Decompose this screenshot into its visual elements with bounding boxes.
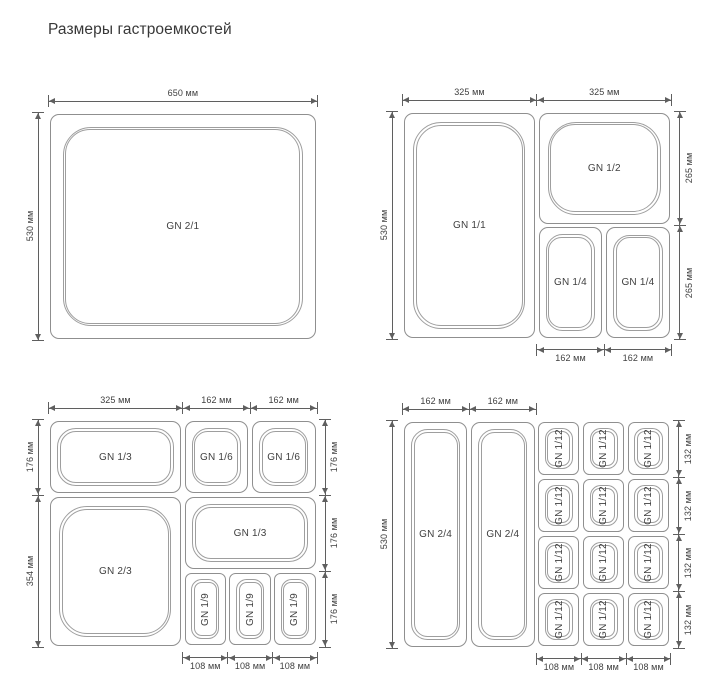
- dimension-extension-tick: [386, 339, 398, 340]
- dimension-arrow-down: [322, 564, 328, 570]
- dimension-arrow-up: [322, 572, 328, 578]
- container-label: GN 2/4: [472, 423, 534, 646]
- dimension-label: 530 мм: [25, 211, 35, 242]
- dimension-arrow-up: [677, 112, 683, 118]
- dimension-arrow-up: [676, 535, 682, 541]
- container-label: GN 1/12: [584, 480, 623, 531]
- container-gn-1-4: GN 1/4: [606, 227, 670, 338]
- container-label: GN 1/12: [629, 537, 668, 588]
- dimension-label: 132 мм: [683, 490, 693, 521]
- dimension-arrow-right: [176, 405, 182, 411]
- dimension-line: [38, 495, 39, 648]
- container-gn-1-12: GN 1/12: [583, 536, 624, 589]
- dimension-line: [48, 408, 183, 409]
- dimension-arrow-right: [597, 347, 603, 353]
- dimension-arrow-down: [676, 641, 682, 647]
- dimension-arrow-up: [677, 226, 683, 232]
- dimension-label: 265 мм: [684, 153, 694, 184]
- container-label-text: GN 1/12: [553, 429, 564, 468]
- container-gn-1-3: GN 1/3: [185, 497, 316, 569]
- dimension-arrow-down: [676, 584, 682, 590]
- container-label-text: GN 1/2: [588, 163, 621, 174]
- container-gn-1-12: GN 1/12: [628, 536, 669, 589]
- dimension-arrow-left: [605, 347, 611, 353]
- container-label-text: GN 1/9: [200, 593, 211, 626]
- dimension-arrow-up: [676, 592, 682, 598]
- dimension-arrow-down: [677, 333, 683, 339]
- container-label: GN 2/4: [405, 423, 467, 646]
- container-label-text: GN 1/6: [200, 452, 233, 463]
- dimension-line: [678, 534, 679, 591]
- container-gn-1-9: GN 1/9: [185, 573, 226, 645]
- dimension-label: 162 мм: [420, 396, 451, 406]
- dimension-label: 162 мм: [623, 353, 654, 363]
- dimension-line: [679, 225, 680, 339]
- container-gn-1-12: GN 1/12: [583, 593, 624, 646]
- dimension-extension-tick: [386, 648, 398, 649]
- container-gn-1-12: GN 1/12: [538, 479, 579, 532]
- dimension-label: 108 мм: [190, 661, 221, 671]
- dimension-extension-tick: [671, 344, 672, 356]
- dimension-line: [38, 419, 39, 495]
- dimension-arrow-left: [184, 655, 190, 661]
- dimension-arrow-up: [322, 496, 328, 502]
- container-label-text: GN 1/12: [643, 543, 654, 582]
- container-gn-1-12: GN 1/12: [628, 593, 669, 646]
- dimension-label: 176 мм: [329, 594, 339, 625]
- dimension-line: [38, 112, 39, 341]
- container-gn-1-12: GN 1/12: [583, 479, 624, 532]
- container-label-text: GN 2/1: [166, 221, 199, 232]
- container-label-text: GN 2/4: [419, 529, 452, 540]
- dimension-label: 176 мм: [329, 518, 339, 549]
- dimension-label: 325 мм: [100, 395, 131, 405]
- container-gn-1-2: GN 1/2: [539, 113, 670, 224]
- container-label: GN 1/12: [584, 594, 623, 645]
- dimension-arrow-left: [627, 656, 633, 662]
- container-label: GN 1/12: [629, 594, 668, 645]
- dimension-label: 108 мм: [235, 661, 266, 671]
- dimension-line: [537, 100, 672, 101]
- container-label-text: GN 1/12: [643, 600, 654, 639]
- container-label-text: GN 1/12: [553, 486, 564, 525]
- container-label-text: GN 1/3: [234, 528, 267, 539]
- container-gn-1-9: GN 1/9: [274, 573, 315, 645]
- dimension-extension-tick: [671, 94, 672, 106]
- dimension-line: [250, 408, 317, 409]
- container-gn-1-12: GN 1/12: [538, 593, 579, 646]
- dimension-arrow-up: [676, 478, 682, 484]
- dimension-arrow-right: [619, 656, 625, 662]
- container-label: GN 1/4: [607, 228, 669, 337]
- dimension-arrow-up: [35, 420, 41, 426]
- dimension-arrow-right: [266, 655, 272, 661]
- container-gn-1-3: GN 1/3: [50, 421, 181, 493]
- dimension-label: 108 мм: [544, 662, 575, 672]
- dimension-arrow-down: [35, 641, 41, 647]
- container-label-text: GN 1/12: [553, 600, 564, 639]
- dimension-line: [679, 111, 680, 225]
- dimension-line: [402, 409, 469, 410]
- dimension-label: 162 мм: [555, 353, 586, 363]
- container-label: GN 1/9: [275, 574, 314, 644]
- dimension-extension-tick: [32, 340, 44, 341]
- container-label-text: GN 1/12: [598, 543, 609, 582]
- dimension-arrow-left: [274, 655, 280, 661]
- dimension-arrow-down: [389, 642, 395, 648]
- dimension-arrow-right: [221, 655, 227, 661]
- container-label-text: GN 1/9: [245, 593, 256, 626]
- dimension-label: 530 мм: [379, 210, 389, 241]
- panel-gn-2-4-combo: GN 2/4GN 2/4GN 1/12GN 1/12GN 1/12GN 1/12…: [402, 420, 671, 649]
- dimension-line: [678, 591, 679, 648]
- dimension-arrow-down: [322, 640, 328, 646]
- dimension-label: 162 мм: [488, 396, 519, 406]
- container-gn-1-9: GN 1/9: [229, 573, 270, 645]
- container-label: GN 1/12: [584, 423, 623, 474]
- dimension-line: [325, 495, 326, 571]
- container-label: GN 1/12: [539, 594, 578, 645]
- dimension-label: 325 мм: [454, 87, 485, 97]
- dimension-arrow-left: [582, 656, 588, 662]
- container-label: GN 1/2: [540, 114, 669, 223]
- dimension-arrow-up: [389, 421, 395, 427]
- container-gn-2-4: GN 2/4: [471, 422, 535, 647]
- container-label-text: GN 1/12: [598, 600, 609, 639]
- dimension-extension-tick: [317, 402, 318, 414]
- dimension-label: 265 мм: [684, 267, 694, 298]
- dimension-arrow-left: [229, 655, 235, 661]
- dimension-arrow-left: [538, 347, 544, 353]
- dimension-arrow-left: [184, 405, 190, 411]
- dimension-arrow-right: [529, 406, 535, 412]
- container-label: GN 2/1: [51, 115, 315, 338]
- dimension-label: 650 мм: [168, 88, 199, 98]
- dimension-arrow-up: [676, 421, 682, 427]
- dimension-label: 176 мм: [329, 442, 339, 473]
- dimension-arrow-down: [676, 470, 682, 476]
- dimension-label: 530 мм: [379, 519, 389, 550]
- container-label: GN 1/6: [186, 422, 248, 492]
- container-label-text: GN 1/12: [643, 486, 654, 525]
- container-gn-1-12: GN 1/12: [628, 422, 669, 475]
- container-gn-2-3: GN 2/3: [50, 497, 181, 646]
- dimension-label: 132 мм: [683, 604, 693, 635]
- dimension-line: [325, 419, 326, 495]
- dimension-arrow-left: [49, 98, 55, 104]
- dimension-line: [402, 100, 537, 101]
- dimension-label: 132 мм: [683, 547, 693, 578]
- container-label-text: GN 1/6: [267, 452, 300, 463]
- container-label: GN 1/6: [253, 422, 315, 492]
- diagram-canvas: GN 2/1650 мм530 ммGN 1/1GN 1/2GN 1/4GN 1…: [0, 0, 720, 696]
- container-gn-1-1: GN 1/1: [404, 113, 535, 338]
- dimension-arrow-left: [403, 406, 409, 412]
- container-label: GN 1/1: [405, 114, 534, 337]
- container-label-text: GN 2/4: [486, 529, 519, 540]
- dimension-label: 354 мм: [25, 556, 35, 587]
- container-gn-1-12: GN 1/12: [538, 536, 579, 589]
- container-label-text: GN 1/12: [598, 429, 609, 468]
- container-label: GN 1/9: [186, 574, 225, 644]
- container-label-text: GN 1/12: [643, 429, 654, 468]
- dimension-label: 108 мм: [588, 662, 619, 672]
- container-gn-1-4: GN 1/4: [539, 227, 603, 338]
- dimension-line: [325, 571, 326, 647]
- dimension-arrow-right: [665, 97, 671, 103]
- container-label-text: GN 1/12: [553, 543, 564, 582]
- dimension-arrow-up: [35, 113, 41, 119]
- container-label-text: GN 1/12: [598, 486, 609, 525]
- dimension-line: [678, 420, 679, 477]
- dimension-arrow-down: [677, 218, 683, 224]
- container-label: GN 1/12: [584, 537, 623, 588]
- dimension-arrow-down: [35, 488, 41, 494]
- dimension-arrow-left: [470, 406, 476, 412]
- container-label-text: GN 1/4: [554, 277, 587, 288]
- dimension-line: [392, 111, 393, 340]
- dimension-arrow-left: [49, 405, 55, 411]
- container-gn-1-12: GN 1/12: [538, 422, 579, 475]
- dimension-label: 162 мм: [268, 395, 299, 405]
- panel-gn-2-3-combo: GN 1/3GN 1/6GN 1/6GN 2/3GN 1/3GN 1/9GN 1…: [48, 419, 317, 648]
- container-label: GN 1/3: [186, 498, 315, 568]
- dimension-extension-tick: [317, 652, 318, 664]
- dimension-line: [392, 420, 393, 649]
- container-label-text: GN 1/9: [289, 593, 300, 626]
- dimension-arrow-right: [243, 405, 249, 411]
- dimension-arrow-left: [403, 97, 409, 103]
- container-label: GN 1/12: [539, 537, 578, 588]
- dimension-arrow-left: [537, 656, 543, 662]
- dimension-extension-tick: [317, 95, 318, 107]
- dimension-arrow-left: [251, 405, 257, 411]
- dimension-line: [678, 477, 679, 534]
- dimension-label: 108 мм: [633, 662, 664, 672]
- dimension-arrow-right: [664, 656, 670, 662]
- dimension-label: 325 мм: [589, 87, 620, 97]
- dimension-arrow-right: [311, 98, 317, 104]
- container-label-text: GN 1/4: [621, 277, 654, 288]
- container-label: GN 1/4: [540, 228, 602, 337]
- container-gn-1-6: GN 1/6: [252, 421, 316, 493]
- dimension-label: 176 мм: [25, 442, 35, 473]
- container-label: GN 1/12: [539, 480, 578, 531]
- dimension-extension-tick: [319, 647, 331, 648]
- dimension-arrow-right: [462, 406, 468, 412]
- dimension-line: [537, 349, 604, 350]
- container-label: GN 1/3: [51, 422, 180, 492]
- dimension-extension-tick: [32, 647, 44, 648]
- dimension-arrow-right: [665, 347, 671, 353]
- dimension-extension-tick: [673, 648, 685, 649]
- container-label: GN 1/12: [539, 423, 578, 474]
- container-label: GN 1/9: [230, 574, 269, 644]
- dimension-arrow-up: [322, 420, 328, 426]
- panel-gn-1-1-combo: GN 1/1GN 1/2GN 1/4GN 1/4325 мм325 мм530 …: [402, 111, 672, 340]
- container-gn-1-6: GN 1/6: [185, 421, 249, 493]
- dimension-arrow-up: [389, 112, 395, 118]
- container-gn-2-4: GN 2/4: [404, 422, 468, 647]
- dimension-arrow-down: [389, 333, 395, 339]
- dimension-extension-tick: [670, 653, 671, 665]
- container-label-text: GN 1/1: [453, 220, 486, 231]
- dimension-arrow-left: [538, 97, 544, 103]
- dimension-arrow-right: [574, 656, 580, 662]
- dimension-line: [469, 409, 536, 410]
- dimension-line: [48, 101, 318, 102]
- panel-gn-2-1: GN 2/1650 мм530 мм: [48, 112, 318, 341]
- dimension-arrow-right: [530, 97, 536, 103]
- dimension-arrow-down: [322, 488, 328, 494]
- dimension-arrow-right: [310, 655, 316, 661]
- container-label: GN 2/3: [51, 498, 180, 645]
- dimension-arrow-down: [35, 334, 41, 340]
- dimension-line: [183, 408, 250, 409]
- dimension-extension-tick: [674, 339, 686, 340]
- container-label: GN 1/12: [629, 480, 668, 531]
- container-label-text: GN 1/3: [99, 452, 132, 463]
- dimension-arrow-down: [676, 527, 682, 533]
- container-label-text: GN 2/3: [99, 566, 132, 577]
- container-gn-1-12: GN 1/12: [583, 422, 624, 475]
- dimension-label: 108 мм: [280, 661, 311, 671]
- dimension-extension-tick: [536, 403, 537, 415]
- container-gn-1-12: GN 1/12: [628, 479, 669, 532]
- dimension-arrow-right: [310, 405, 316, 411]
- container-label: GN 1/12: [629, 423, 668, 474]
- dimension-line: [604, 349, 672, 350]
- dimension-label: 162 мм: [201, 395, 232, 405]
- dimension-label: 132 мм: [683, 433, 693, 464]
- container-gn-2-1: GN 2/1: [50, 114, 316, 339]
- dimension-arrow-up: [35, 496, 41, 502]
